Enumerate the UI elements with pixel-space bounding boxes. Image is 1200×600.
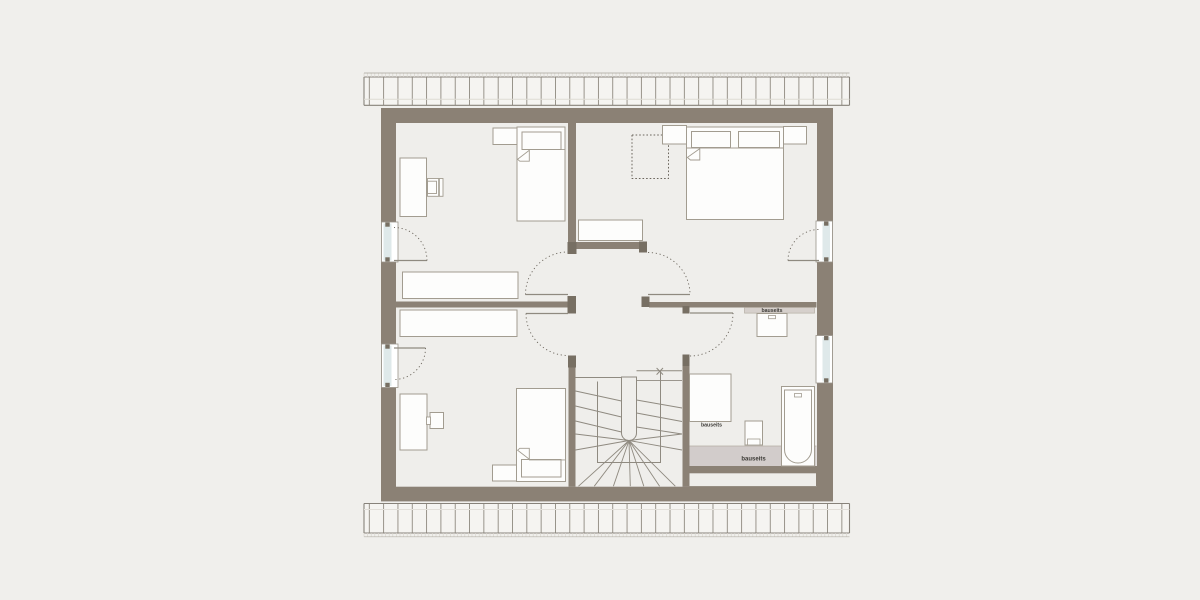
svg-text:bauseits: bauseits	[701, 423, 722, 429]
svg-text:bauseits: bauseits	[761, 308, 782, 314]
svg-text:bauseits: bauseits	[741, 456, 766, 462]
